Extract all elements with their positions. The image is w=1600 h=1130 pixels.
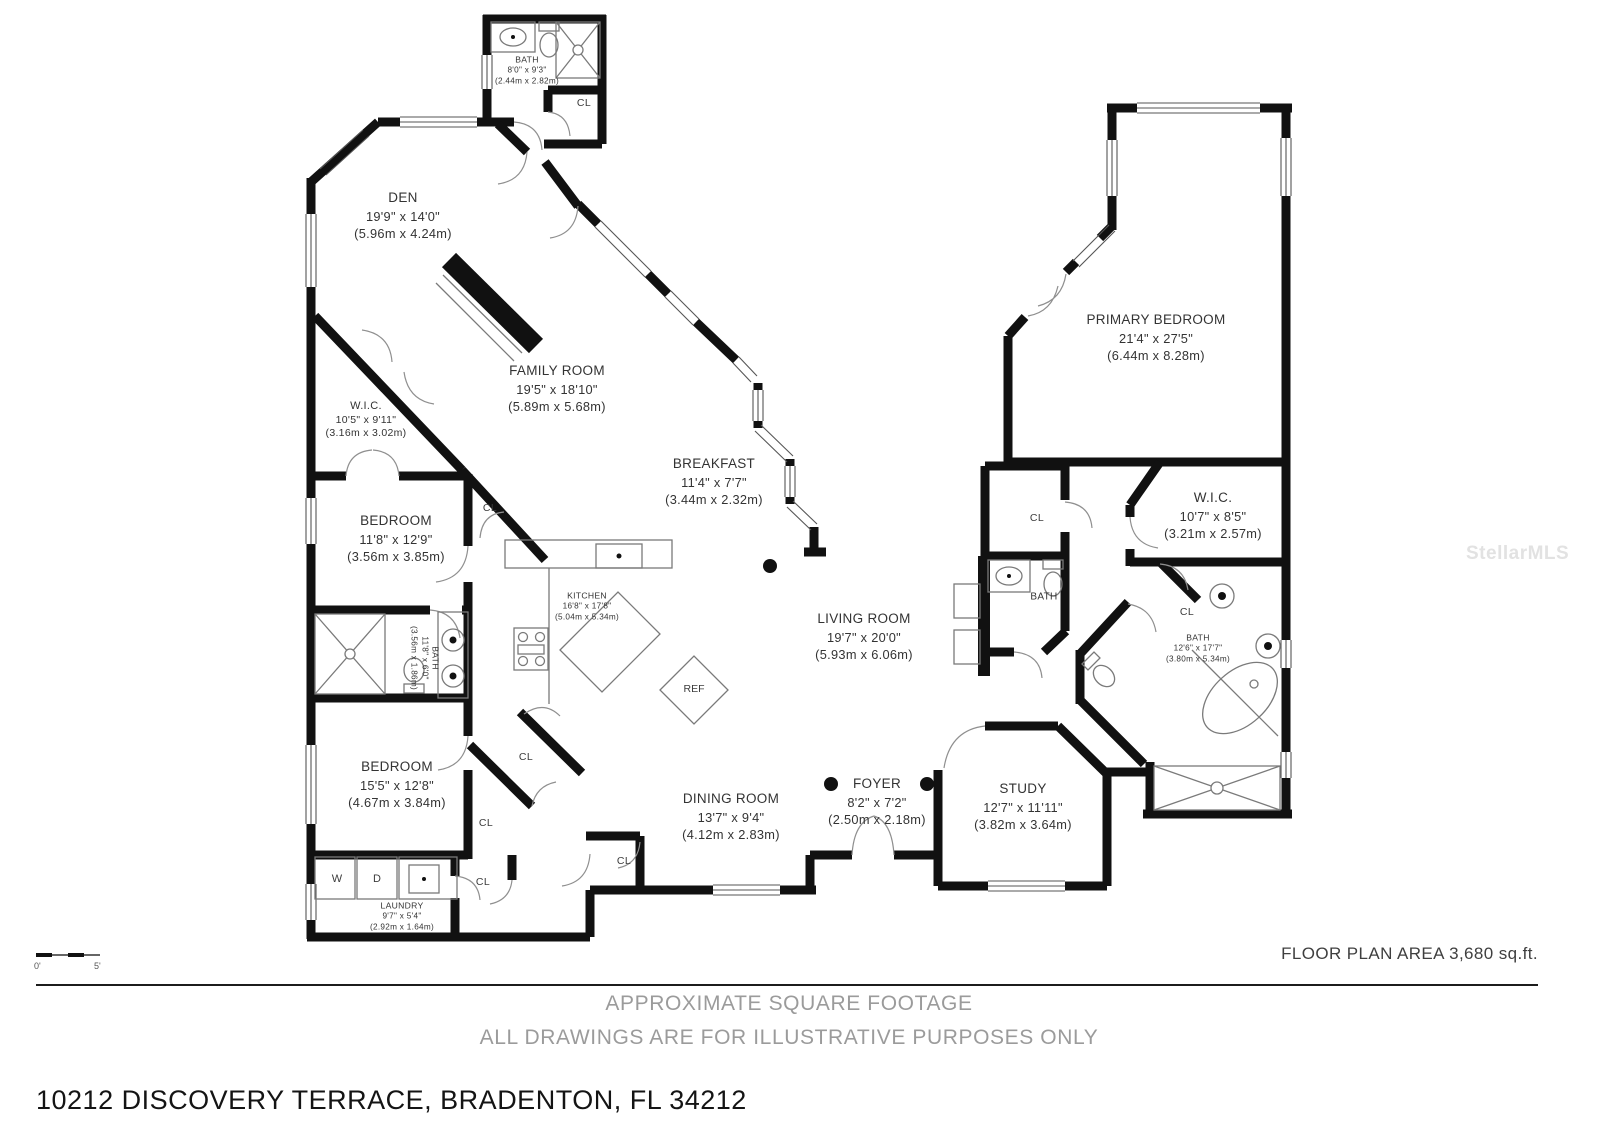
room-label-primary: PRIMARY BEDROOM 21'4" x 27'5" (6.44m x 8… [1086,311,1225,365]
room-label-living: LIVING ROOM 19'7" x 20'0" (5.93m x 6.06m… [815,610,913,664]
floor-plan-area-label: FLOOR PLAN AREA 3,680 sq.ft. [1281,944,1538,964]
closet-label: CL [476,876,490,888]
laundry-sink-icon [399,857,457,899]
sink-icon [988,560,1030,592]
closet-label: CL [483,502,497,514]
floor-plan-page: BATH 8'0" x 9'3" (2.44m x 2.82m) DEN 19'… [0,0,1600,1130]
scale-bar [36,953,100,957]
room-label-bedroom2: BEDROOM 15'5" x 12'8" (4.67m x 3.84m) [348,758,446,812]
toilet-icon [1082,652,1119,691]
column-dot [763,559,777,573]
shower-icon [556,22,600,78]
media-niche [954,584,980,618]
closet-label: CL [617,855,631,867]
washer-label: W [332,873,342,885]
closet-label: CL [1030,512,1044,524]
closet-label: CL [519,751,533,763]
closet-label: CL [1180,606,1194,618]
fridge-label: REF [684,683,705,695]
room-label-kitchen: KITCHEN 16'8" x 17'8" (5.04m x 5.34m) [555,591,619,624]
room-label-bath-right: BATH 12'6" x 17'7" (3.80m x 5.34m) [1166,633,1230,666]
scale-five-label: 5' [94,961,101,971]
property-address: 10212 DISCOVERY TERRACE, BRADENTON, FL 3… [36,1085,747,1116]
room-label-bath-top: BATH 8'0" x 9'3" (2.44m x 2.82m) [495,55,559,88]
room-label-study: STUDY 12'7" x 11'11" (3.82m x 3.64m) [974,780,1072,834]
room-label-bath-small: BATH [1030,590,1057,603]
walls [307,15,1292,939]
closet-label: CL [479,817,493,829]
footer-divider [36,984,1538,986]
footer-note-1: APPROXIMATE SQUARE FOOTAGE [0,992,1578,1016]
room-label-wic-left: W.I.C. 10'5" x 9'11" (3.16m x 3.02m) [326,399,407,441]
room-label-foyer: FOYER 8'2" x 7'2" (2.50m x 2.18m) [828,775,926,829]
room-label-dining: DINING ROOM 13'7" x 9'4" (4.12m x 2.83m) [682,790,780,844]
dryer-label: D [373,873,381,885]
shower-icon [315,614,385,694]
scale-zero-label: 0' [34,961,41,971]
stove-icon [514,628,548,670]
shower-icon [1154,766,1280,810]
sink-icon [491,22,535,52]
room-label-wic-right: W.I.C. 10'7" x 8'5" (3.21m x 2.57m) [1164,489,1262,543]
room-label-laundry: LAUNDRY 9'7" x 5'4" (2.92m x 1.64m) [370,901,434,934]
room-label-bath-left: BATH 11'8" x 6'0" (3.56m x 1.86m) [408,626,441,690]
room-label-bedroom1: BEDROOM 11'8" x 12'9" (3.56m x 3.85m) [347,512,445,566]
media-niche [954,630,980,664]
watermark: StellarMLS [1466,543,1569,565]
room-label-breakfast: BREAKFAST 11'4" x 7'7" (3.44m x 2.32m) [665,455,763,509]
closet-label: CL [577,97,591,109]
room-label-family: FAMILY ROOM 19'5" x 18'10" (5.89m x 5.68… [508,362,606,416]
footer-note-2: ALL DRAWINGS ARE FOR ILLUSTRATIVE PURPOS… [0,1026,1578,1050]
room-label-den: DEN 19'9" x 14'0" (5.96m x 4.24m) [354,189,452,243]
